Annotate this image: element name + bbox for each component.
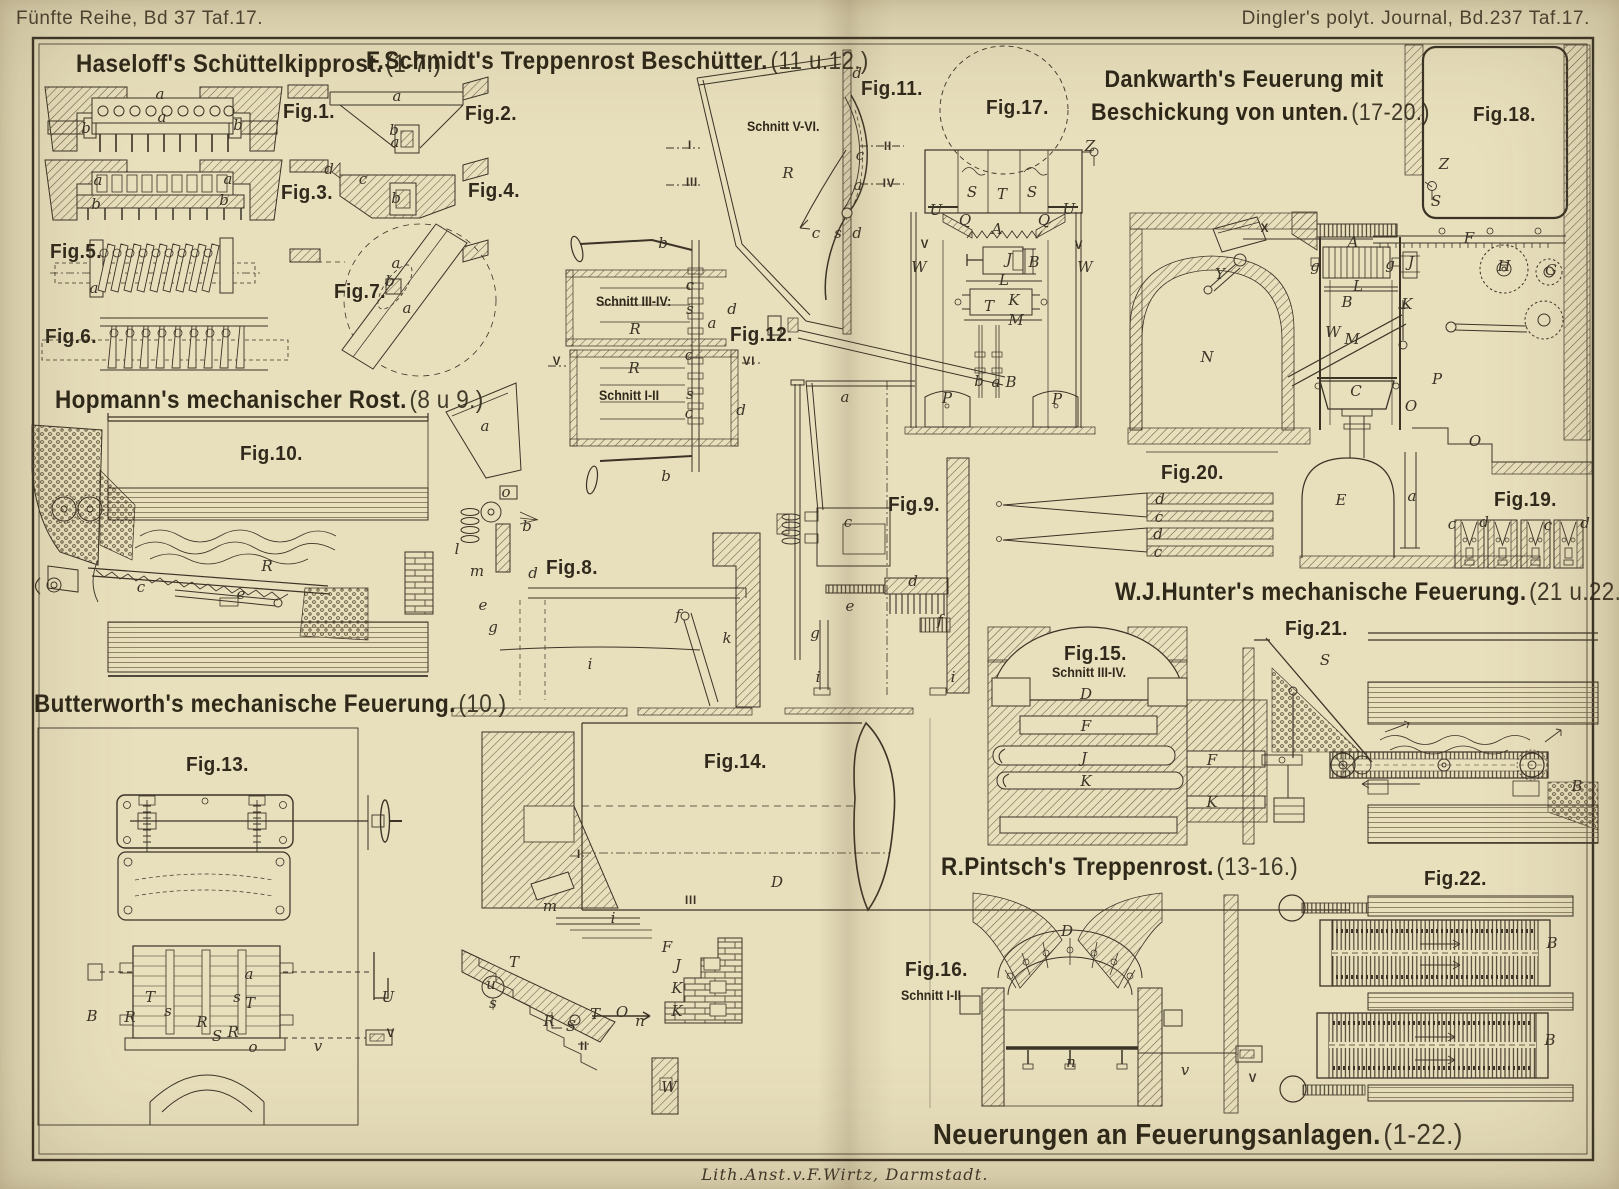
fig-8-drawing	[446, 383, 760, 707]
header-left: Fünfte Reihe, Bd 37 Taf.17.	[16, 8, 263, 30]
fig-2-label: Fig.2.	[465, 103, 517, 126]
cut-label-fig12a: Schnitt III-IV:	[596, 294, 671, 309]
fig-3-label: Fig.3.	[281, 182, 333, 205]
section-title-butterworth-text: Butterworth's mechanische Feuerung.	[34, 690, 456, 718]
section-title-dankwarth2-range: (17-20.)	[1351, 99, 1430, 126]
section-title-pintsch-range: (13-16.)	[1216, 853, 1298, 881]
header-right: Dingler's polyt. Journal, Bd.237 Taf.17.	[1150, 8, 1590, 30]
section-title-haseloff-text: Haseloff's Schüttelkipprost.	[76, 50, 383, 78]
section-title-hunter-text: W.J.Hunter's mechanische Feuerung.	[1115, 578, 1526, 606]
main-title: Neuerungen an Feuerungsanlagen.(1-22.)	[933, 1119, 1463, 1152]
fig-10-label: Fig.10.	[240, 443, 303, 466]
section-title-pintsch: R.Pintsch's Treppenrost.(13-16.)	[941, 853, 1298, 882]
fig-7-label: Fig.7.	[334, 281, 386, 304]
fig-1-label: Fig.1.	[283, 101, 335, 124]
section-title-dankwarth1-text: Dankwarth's Feuerung mit	[1105, 66, 1384, 93]
section-title-schmidt-range: (11 u.12.)	[770, 47, 868, 75]
fig-14-label: Fig.14.	[704, 751, 767, 774]
cut-label-fig12b: Schnitt I-II	[599, 388, 659, 403]
section-title-schmidt: F.Schmidt's Treppenrost Beschütter.(11 u…	[366, 47, 869, 76]
section-title-hopmann: Hopmann's mechanischer Rost.(8 u 9.)	[55, 386, 484, 415]
fig-15-drawing	[988, 627, 1267, 845]
fig-10-drawing	[32, 413, 433, 676]
section-title-pintsch-text: R.Pintsch's Treppenrost.	[941, 853, 1214, 881]
cut-label-fig15: Schnitt III-IV.	[1052, 665, 1126, 680]
fig-13-drawing	[38, 728, 402, 1125]
section-title-hunter-range: (21 u.22.)	[1529, 578, 1619, 606]
section-title-schmidt-text: F.Schmidt's Treppenrost Beschütter.	[366, 47, 768, 75]
fig-22-drawing	[1279, 895, 1573, 1102]
fig-15-label: Fig.15.	[1064, 643, 1127, 666]
section-title-hopmann-range: (8 u 9.)	[409, 386, 483, 414]
fig-18-label: Fig.18.	[1473, 104, 1536, 127]
fig-20-drawing	[997, 493, 1274, 556]
fig-8-label: Fig.8.	[546, 557, 598, 580]
fig-21-label: Fig.21.	[1285, 618, 1348, 641]
fig-21-drawing	[1243, 633, 1598, 844]
ground-strips	[452, 708, 913, 716]
plate-page: Fünfte Reihe, Bd 37 Taf.17. Dingler's po…	[0, 0, 1619, 1189]
fig-11-label: Fig.11.	[861, 78, 923, 101]
section-title-hunter: W.J.Hunter's mechanische Feuerung.(21 u.…	[1115, 578, 1619, 607]
fig-16-label: Fig.16.	[905, 959, 968, 982]
fig-4-label: Fig.4.	[468, 180, 520, 203]
section-title-hopmann-text: Hopmann's mechanischer Rost.	[55, 386, 407, 414]
fig-9-label: Fig.9.	[888, 494, 940, 517]
fig-3-drawing	[45, 160, 282, 220]
main-title-text: Neuerungen an Feuerungsanlagen.	[933, 1119, 1381, 1151]
fig-13-label: Fig.13.	[186, 754, 249, 777]
fig-11-drawing	[666, 50, 1005, 385]
fig-5-label: Fig.5.	[50, 241, 102, 264]
section-title-butterworth: Butterworth's mechanische Feuerung.(10.)	[34, 690, 507, 719]
section-title-dankwarth2-text: Beschickung von unten.	[1091, 99, 1349, 126]
section-title-dankwarth-line2: Beschickung von unten.(17-20.)	[1091, 99, 1379, 127]
section-title-dankwarth-line1: Dankwarth's Feuerung mit	[1105, 66, 1366, 94]
credit-line: Lith.Anst.v.F.Wirtz, Darmstadt.	[690, 1165, 1000, 1184]
fig-12-drawing	[548, 235, 760, 495]
cut-label-fig11: Schnitt V-VI.	[747, 119, 819, 134]
fig-20-label: Fig.20.	[1161, 462, 1224, 485]
cut-label-fig16: Schnitt I-II	[901, 988, 961, 1003]
fig-7-drawing	[290, 224, 496, 376]
fig-1-drawing	[45, 87, 282, 152]
section-title-butterworth-range: (10.)	[458, 690, 506, 718]
main-title-range: (1-22.)	[1383, 1119, 1462, 1151]
fig-6-label: Fig.6.	[45, 326, 97, 349]
fig-19-label: Fig.19.	[1494, 489, 1557, 512]
fig-17-label: Fig.17.	[986, 97, 1049, 120]
fig-12-label: Fig.12.	[730, 324, 793, 347]
fig-22-label: Fig.22.	[1424, 868, 1487, 891]
fig-16-drawing	[960, 893, 1262, 1113]
